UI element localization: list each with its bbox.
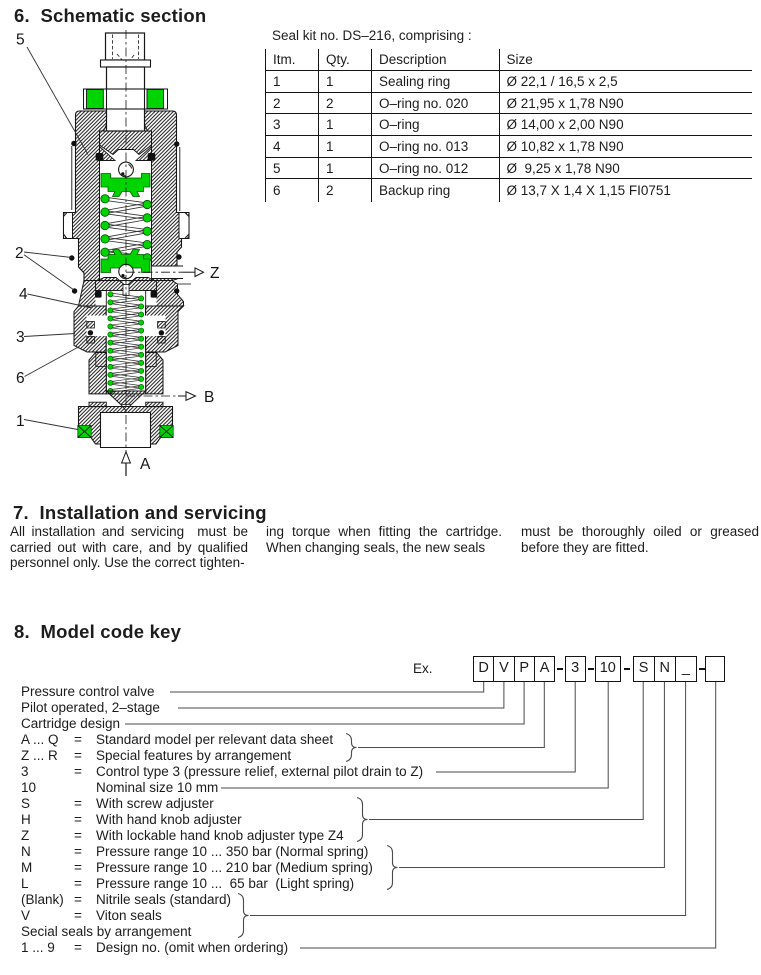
svg-text:1: 1: [16, 413, 25, 430]
svg-text:6: 6: [16, 370, 25, 387]
svg-text:Z: Z: [210, 265, 219, 282]
svg-text:5: 5: [16, 32, 25, 49]
svg-text:4: 4: [19, 286, 28, 303]
svg-text:2: 2: [15, 245, 24, 262]
svg-text:B: B: [204, 389, 214, 406]
svg-text:3: 3: [16, 329, 25, 346]
svg-text:A: A: [140, 456, 151, 473]
